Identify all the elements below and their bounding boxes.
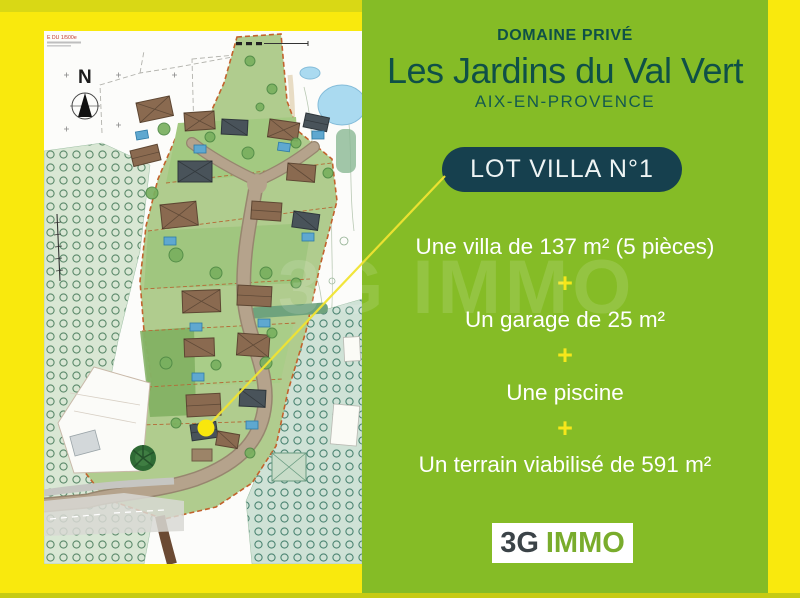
feature-garage: Un garage de 25 m² xyxy=(362,304,768,336)
feature-villa: Une villa de 137 m² (5 pièces) xyxy=(362,231,768,263)
site-plan-drawing: N E DU 1/500e xyxy=(44,31,362,564)
plus-separator: + xyxy=(362,268,768,298)
large-tree xyxy=(130,445,156,471)
page-title: Les Jardins du Val Vert xyxy=(362,50,768,92)
plus-separator: + xyxy=(362,340,768,370)
compass-n-label: N xyxy=(78,67,92,88)
tennis-court xyxy=(272,453,306,481)
kicker: DOMAINE PRIVÉ xyxy=(362,27,768,45)
agency-logo: 3G IMMO xyxy=(492,523,633,563)
top-edge-strip xyxy=(0,0,362,12)
info-panel: DOMAINE PRIVÉ Les Jardins du Val Vert AI… xyxy=(362,0,768,598)
plan-ref-text: E DU 1/500e xyxy=(47,35,77,41)
logo-prefix: 3G xyxy=(500,527,539,560)
subtitle-city: AIX-EN-PROVENCE xyxy=(362,92,768,112)
feature-terrain: Un terrain viabilisé de 591 m² xyxy=(362,449,768,481)
lot-badge: LOT VILLA N°1 xyxy=(442,147,682,192)
logo-suffix: IMMO xyxy=(546,527,625,560)
bottom-edge-strip xyxy=(0,593,800,598)
feature-piscine: Une piscine xyxy=(362,377,768,409)
lot-badge-label: LOT VILLA N°1 xyxy=(470,155,654,184)
site-plan: N E DU 1/500e xyxy=(44,31,362,564)
flyer: N E DU 1/500e DOMAINE P xyxy=(0,0,800,598)
plus-separator: + xyxy=(362,413,768,443)
